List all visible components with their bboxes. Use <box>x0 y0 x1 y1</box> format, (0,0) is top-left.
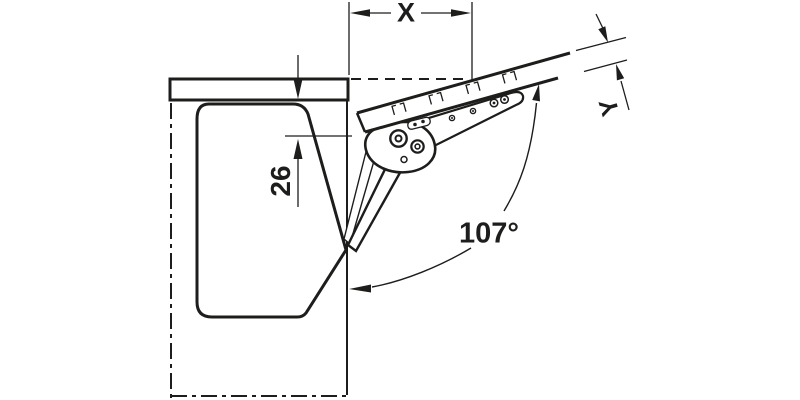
rivet-dot-icon <box>413 123 417 127</box>
x-arrowhead-left-icon <box>350 9 370 17</box>
technical-drawing-canvas: X 26 107° Y <box>0 0 800 400</box>
angle-arc-upper <box>504 103 537 211</box>
small-pivot-icon <box>401 157 407 163</box>
secondary-pivot-center-icon <box>415 144 420 149</box>
x-dimension-label: X <box>397 0 415 27</box>
offset-26-label: 26 <box>267 165 295 196</box>
opening-angle-label: 107° <box>459 220 519 249</box>
x-arrowhead-right-icon <box>451 9 471 17</box>
flap-fitting-diagram <box>0 0 800 400</box>
flap-break-line-inner <box>584 60 627 72</box>
rivet-dot-icon <box>421 120 425 124</box>
bracket-rivet-dot-icon <box>472 110 474 112</box>
bracket-rivet-dot-icon <box>503 98 506 101</box>
angle-arrowhead-top-icon <box>532 84 540 101</box>
main-pivot-center-icon <box>396 136 402 142</box>
y-arrowhead-bottom-icon <box>616 64 624 80</box>
bracket-rivet-dot-icon <box>451 117 453 119</box>
flap-break-line-outer <box>576 38 626 51</box>
bracket-rivet-dot-icon <box>493 102 496 105</box>
cabinet-top-panel <box>170 79 348 100</box>
y-arrowhead-top-icon <box>598 26 608 42</box>
angle-arrowhead-left-icon <box>349 285 371 293</box>
angle-arc-lower <box>372 248 471 287</box>
